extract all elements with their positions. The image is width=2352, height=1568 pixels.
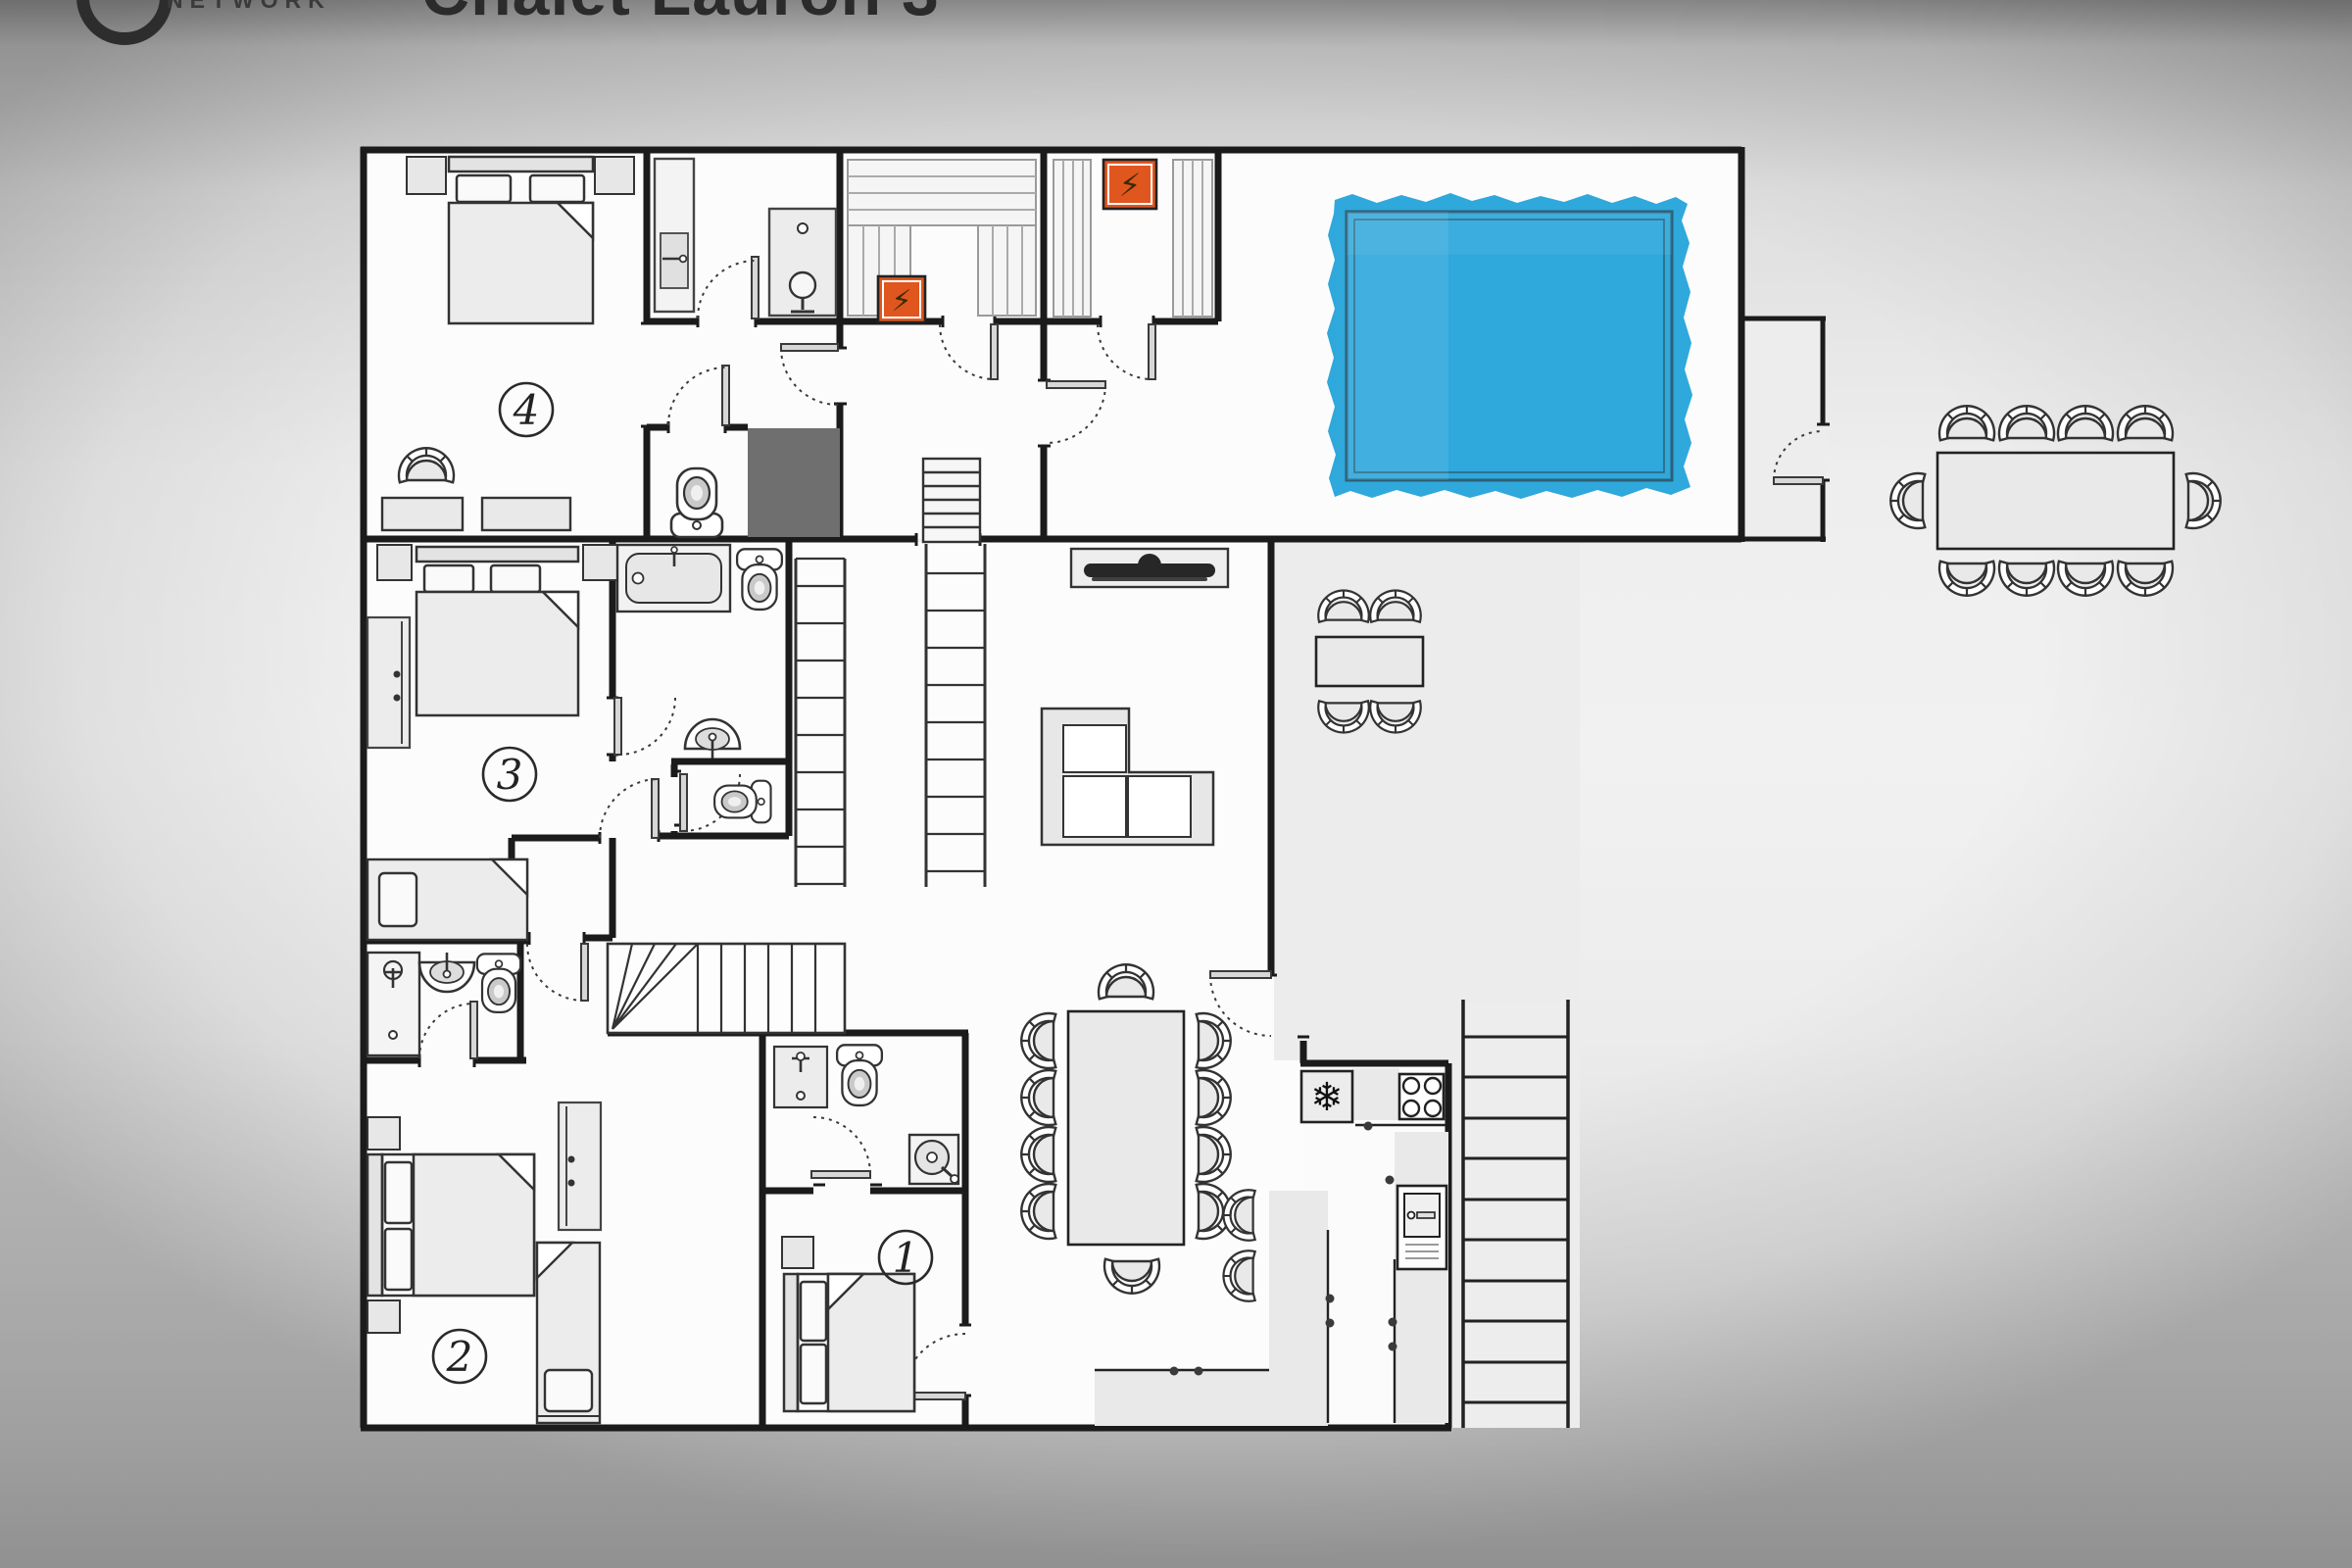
desk <box>482 498 570 530</box>
door-leaf <box>614 698 621 755</box>
door-leaf <box>991 324 998 379</box>
vanity-sink <box>774 1047 827 1107</box>
door-leaf <box>722 366 729 425</box>
nightstand <box>583 545 617 580</box>
svg-text:⚡: ⚡ <box>1119 167 1141 204</box>
swimming-pool <box>1327 193 1692 499</box>
counter <box>1352 1068 1399 1120</box>
shower <box>909 1135 958 1184</box>
door-leaf <box>752 257 759 318</box>
nightstand <box>367 1300 400 1333</box>
bathtub <box>617 545 730 612</box>
nightstand <box>782 1237 813 1268</box>
wc-toilet <box>714 781 770 823</box>
door-leaf <box>781 344 838 351</box>
room-label: 1 <box>893 1234 919 1282</box>
tv-unit <box>1071 549 1228 587</box>
door-leaf <box>811 1171 870 1178</box>
floor-plan: 4 ⚡ <box>0 0 2352 1568</box>
door-leaf <box>581 944 588 1001</box>
dining-table <box>1068 1011 1184 1245</box>
outdoor-dining-set <box>1890 406 2221 596</box>
door-leaf <box>1047 381 1105 388</box>
nightstand <box>367 1117 400 1150</box>
exterior-staircase <box>1463 1000 1568 1428</box>
room-label: 4 <box>513 386 540 434</box>
door-leaf <box>1210 971 1271 978</box>
toilet <box>477 954 520 1012</box>
svg-text:⚡: ⚡ <box>891 284 911 318</box>
fridge-icon: ❄ <box>1310 1075 1344 1120</box>
nightstand <box>377 545 412 580</box>
shower <box>367 953 419 1055</box>
stove <box>1399 1074 1444 1119</box>
single-bed <box>537 1243 600 1423</box>
room-label: 3 <box>497 751 523 799</box>
patio-table <box>1316 637 1423 686</box>
upper-stairs <box>923 459 980 542</box>
room-label: 2 <box>446 1333 473 1381</box>
shower <box>769 209 836 316</box>
desk <box>382 498 463 530</box>
door-leaf <box>652 779 659 838</box>
sauna-heater-icon: ⚡ <box>878 276 925 322</box>
sauna-heater-icon: ⚡ <box>1103 160 1156 209</box>
fridge-freezer: ❄ <box>1301 1071 1352 1122</box>
door-leaf <box>1774 477 1823 484</box>
toilet <box>671 468 722 537</box>
nightstand <box>407 157 446 194</box>
outdoor-table <box>1937 453 2174 549</box>
shower-head-icon <box>790 272 815 298</box>
patio-set <box>1316 590 1423 733</box>
door-leaf <box>680 774 687 831</box>
storage-block <box>748 428 840 537</box>
toilet <box>837 1045 882 1105</box>
winder-staircase <box>608 944 845 1033</box>
door-leaf <box>470 1002 477 1058</box>
door-leaf <box>1149 324 1155 379</box>
counter <box>1395 1132 1448 1423</box>
wardrobe <box>559 1102 601 1230</box>
nightstand <box>595 157 634 194</box>
wardrobe <box>367 617 410 748</box>
single-bed <box>367 859 527 940</box>
toilet <box>737 549 782 610</box>
